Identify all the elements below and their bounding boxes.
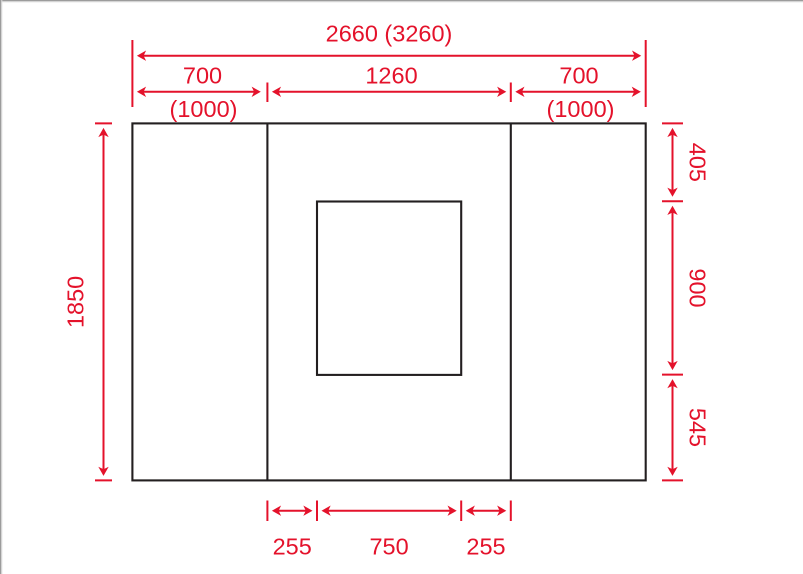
- svg-text:1260: 1260: [365, 63, 417, 89]
- svg-text:1850: 1850: [63, 276, 89, 328]
- svg-text:(1000): (1000): [547, 96, 615, 122]
- svg-text:750: 750: [369, 534, 408, 560]
- svg-text:900: 900: [685, 268, 711, 307]
- svg-text:255: 255: [273, 534, 312, 560]
- svg-text:405: 405: [685, 143, 711, 182]
- svg-text:700: 700: [559, 63, 598, 89]
- svg-text:2660 (3260): 2660 (3260): [326, 21, 453, 47]
- svg-text:255: 255: [466, 534, 505, 560]
- svg-text:700: 700: [183, 63, 222, 89]
- svg-text:(1000): (1000): [170, 96, 238, 122]
- svg-text:545: 545: [685, 408, 711, 447]
